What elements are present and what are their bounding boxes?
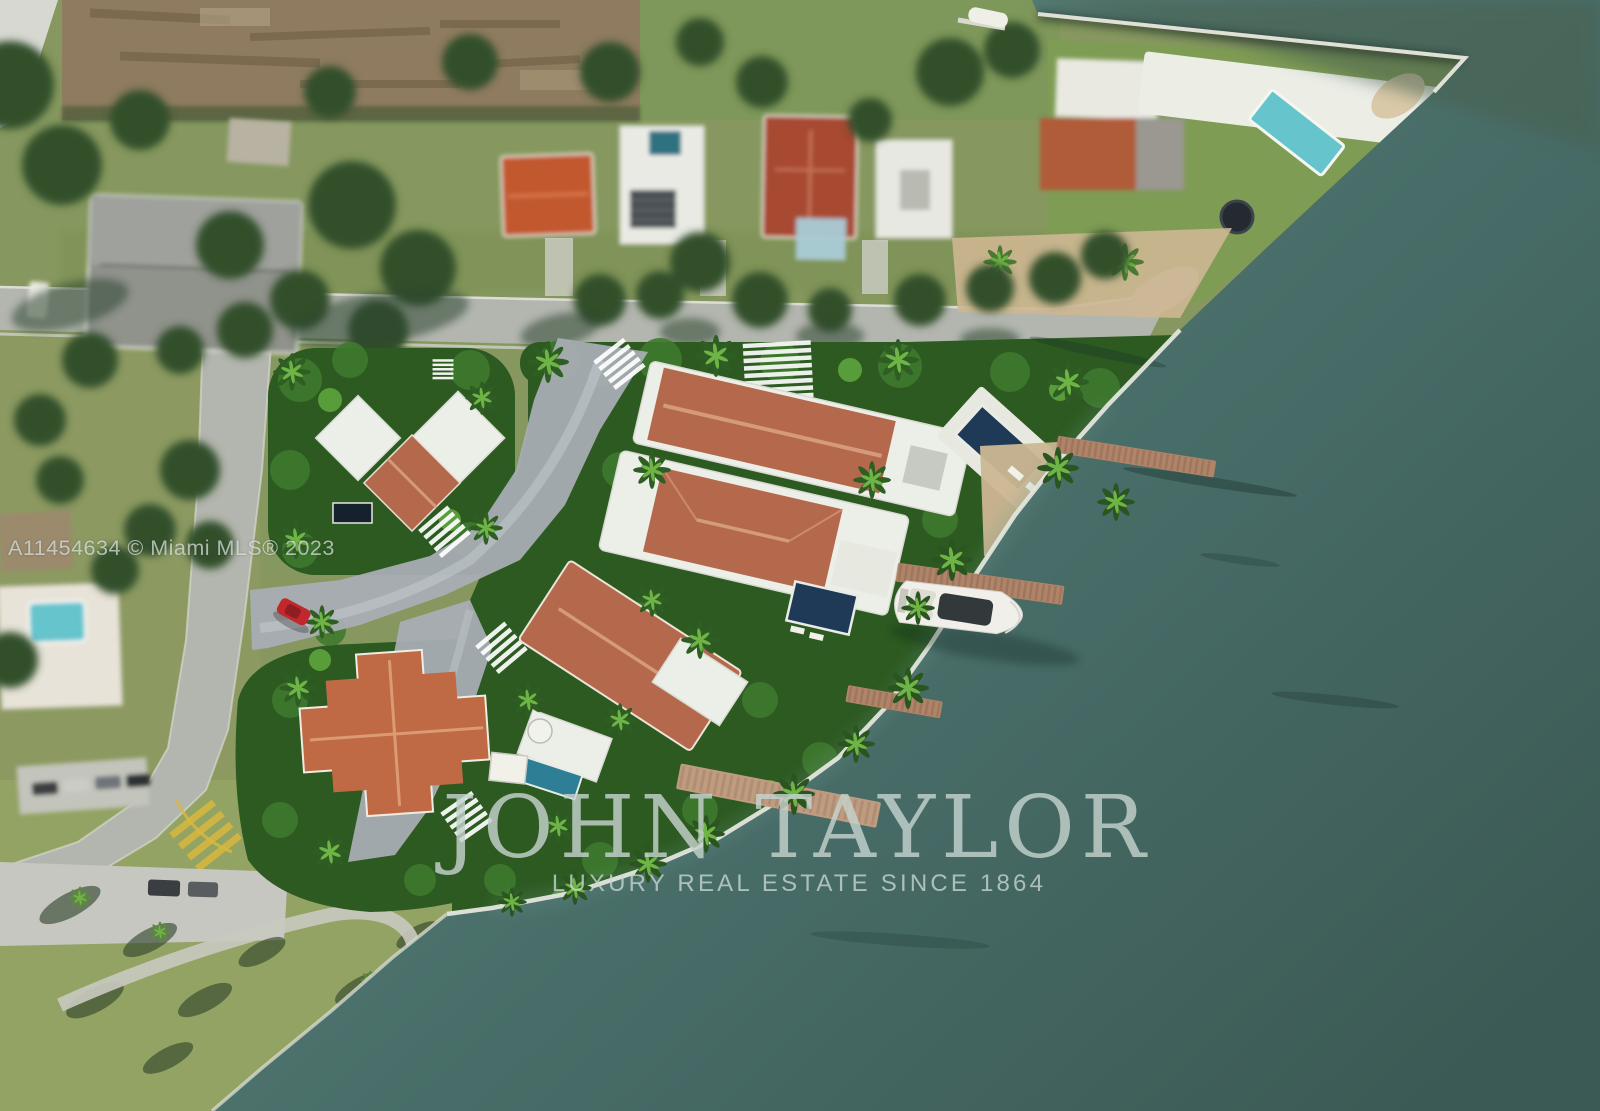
white-modern-house: [620, 126, 704, 244]
patio-umbrella: [528, 719, 552, 743]
parked-car: [148, 879, 181, 896]
aerial-scene: [0, 0, 1600, 1111]
blue-awning: [796, 218, 847, 261]
rooftop-pool: [648, 130, 682, 156]
gazebo: [489, 752, 528, 784]
white-flat-house: [876, 140, 952, 238]
trampoline: [1221, 201, 1253, 233]
parked-car: [188, 881, 219, 897]
swimming-pool: [28, 601, 85, 643]
tan-shed: [0, 510, 73, 572]
orange-roof-house: [501, 153, 596, 236]
driveway-cars: [16, 758, 150, 815]
plunge-pool: [333, 503, 372, 523]
aerial-listing-photo: A11454634 © Miami MLS® 2023 JOHN TAYLOR …: [0, 0, 1600, 1111]
